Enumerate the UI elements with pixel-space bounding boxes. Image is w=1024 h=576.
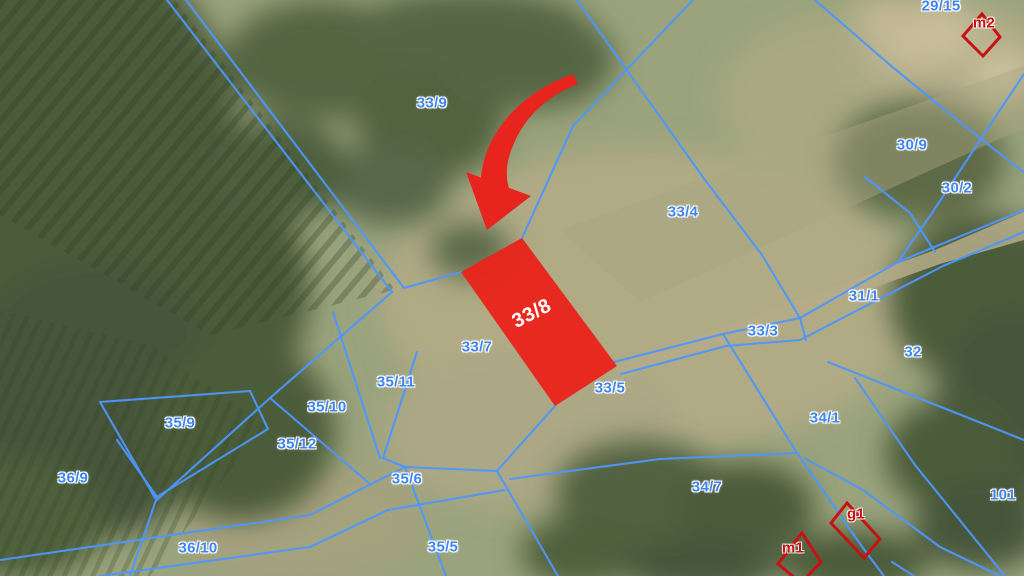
map-graphics [0,0,1024,576]
map-canvas[interactable]: 33/9 29/15 30/9 30/2 33/4 31/1 33/3 32 3… [0,0,1024,576]
